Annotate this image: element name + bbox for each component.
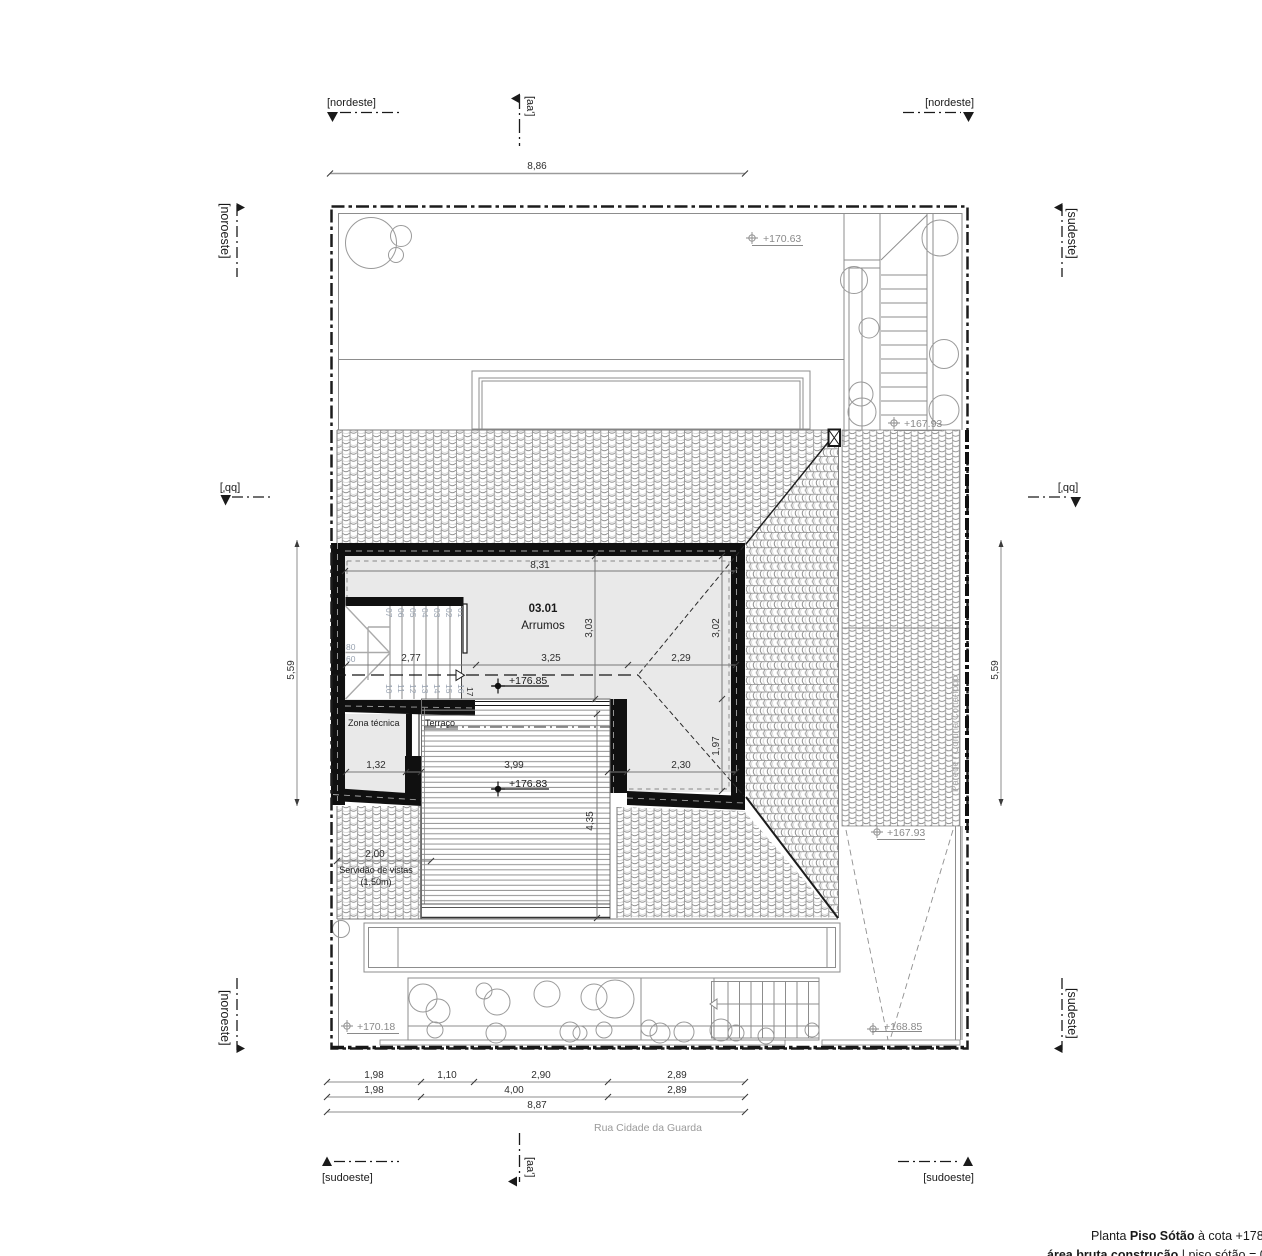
svg-text:3,99: 3,99 [504,760,524,771]
svg-text:02: 02 [444,608,454,618]
svg-text:área bruta construção | piso s: área bruta construção | piso sótão = 03 [1047,1248,1262,1256]
svg-text:5,59: 5,59 [286,660,297,680]
svg-text:[nordeste]: [nordeste] [925,97,974,109]
svg-text:[bb']: [bb'] [1058,482,1078,494]
svg-text:07: 07 [384,608,394,618]
svg-text:2,00: 2,00 [365,849,385,860]
svg-text:[sudeste]: [sudeste] [1065,208,1079,259]
svg-text:4,00: 4,00 [504,1085,524,1096]
svg-text:2,29: 2,29 [671,653,691,664]
svg-text:[sudeste]: [sudeste] [1065,988,1079,1039]
svg-text:14: 14 [432,684,442,694]
svg-text:(1,50m): (1,50m) [360,877,391,887]
svg-text:5,59: 5,59 [990,660,1001,680]
svg-text:2,90: 2,90 [531,1070,551,1081]
svg-text:2,89: 2,89 [667,1085,687,1096]
svg-text:13: 13 [420,684,430,694]
svg-text:3,02: 3,02 [711,618,722,638]
svg-text:2,77: 2,77 [401,653,421,664]
svg-text:[sudoeste]: [sudoeste] [322,1172,373,1184]
svg-text:[noroeste]: [noroeste] [218,203,232,259]
svg-text:06: 06 [396,608,406,618]
svg-text:05: 05 [408,608,418,618]
svg-text:[aa']: [aa'] [524,1157,536,1177]
svg-text:Rua Cidade da Guarda: Rua Cidade da Guarda [594,1122,702,1134]
svg-text:15: 15 [444,684,454,694]
svg-text:[sudoeste]: [sudoeste] [923,1172,974,1184]
svg-text:Parede / Cortina Corta-fogo: Parede / Cortina Corta-fogo [950,675,961,792]
svg-text:+176.83: +176.83 [509,778,547,790]
svg-text:2,30: 2,30 [671,760,691,771]
svg-text:Zona técnica: Zona técnica [348,718,400,728]
svg-text:3,03: 3,03 [584,618,595,638]
svg-text:1,32: 1,32 [366,760,386,771]
svg-text:+170.18: +170.18 [357,1021,395,1033]
svg-text:+176.85: +176.85 [509,675,547,687]
svg-text:03: 03 [432,608,442,618]
svg-text:[nordeste]: [nordeste] [327,97,376,109]
svg-text:10: 10 [384,684,394,694]
svg-text:+167.93: +167.93 [887,827,925,839]
svg-text:03.01: 03.01 [529,603,558,615]
svg-text:8,86: 8,86 [527,161,547,172]
svg-text:+167.93: +167.93 [904,418,942,430]
svg-text:Planta Piso Sótão à cota +178: Planta Piso Sótão à cota +178 [1091,1229,1262,1243]
svg-text:04: 04 [420,608,430,618]
svg-text:4,35: 4,35 [585,811,596,831]
svg-text:80: 80 [346,642,356,652]
svg-text:Servidão de vistas: Servidão de vistas [339,865,413,875]
svg-text:1,10: 1,10 [437,1070,457,1081]
svg-text:8,87: 8,87 [527,1100,547,1111]
svg-text:1,98: 1,98 [364,1070,384,1081]
svg-text:[bb']: [bb'] [220,482,240,494]
svg-text:8,31: 8,31 [530,560,550,571]
svg-text:+170.63: +170.63 [763,233,801,245]
svg-text:16: 16 [456,684,466,694]
svg-text:Arrumos: Arrumos [521,620,565,632]
svg-text:60: 60 [346,654,356,664]
svg-text:12: 12 [408,684,418,694]
svg-text:1,98: 1,98 [364,1085,384,1096]
svg-text:11: 11 [396,684,406,693]
svg-text:1,97: 1,97 [711,736,722,756]
svg-text:[aa']: [aa'] [524,96,536,116]
svg-text:3,25: 3,25 [541,653,561,664]
svg-text:[noroeste]: [noroeste] [218,990,232,1046]
svg-text:17: 17 [465,687,475,697]
svg-text:2,89: 2,89 [667,1070,687,1081]
svg-text:Terraço: Terraço [425,718,455,728]
